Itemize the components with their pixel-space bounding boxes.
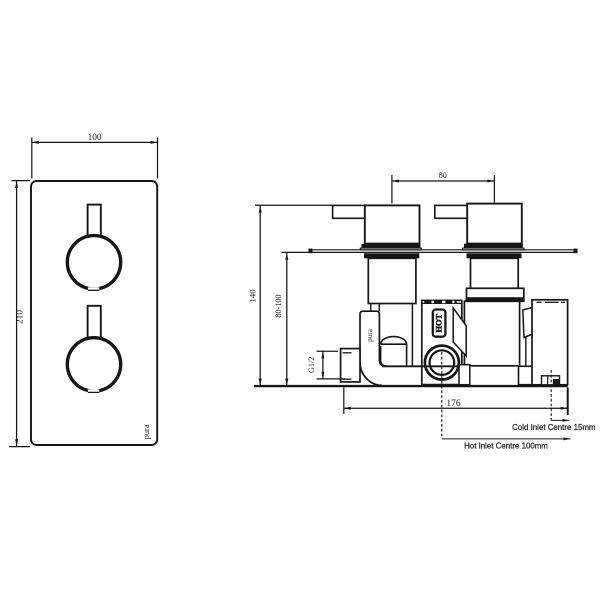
svg-text:210: 210 bbox=[16, 310, 26, 324]
svg-text:G1/2: G1/2 bbox=[307, 357, 316, 373]
svg-text:Hot Inlet Centre 100mm: Hot Inlet Centre 100mm bbox=[464, 442, 548, 451]
svg-text:pura: pura bbox=[142, 424, 151, 439]
svg-text:pura: pura bbox=[366, 328, 374, 342]
svg-text:80: 80 bbox=[439, 171, 447, 180]
svg-text:140: 140 bbox=[248, 289, 258, 303]
svg-text:100: 100 bbox=[88, 133, 102, 143]
svg-text:Cold Inlet Centre 15mm: Cold Inlet Centre 15mm bbox=[512, 423, 596, 432]
svg-text:HOT: HOT bbox=[435, 313, 444, 332]
svg-text:176: 176 bbox=[446, 399, 461, 409]
svg-text:80-100: 80-100 bbox=[274, 294, 283, 317]
